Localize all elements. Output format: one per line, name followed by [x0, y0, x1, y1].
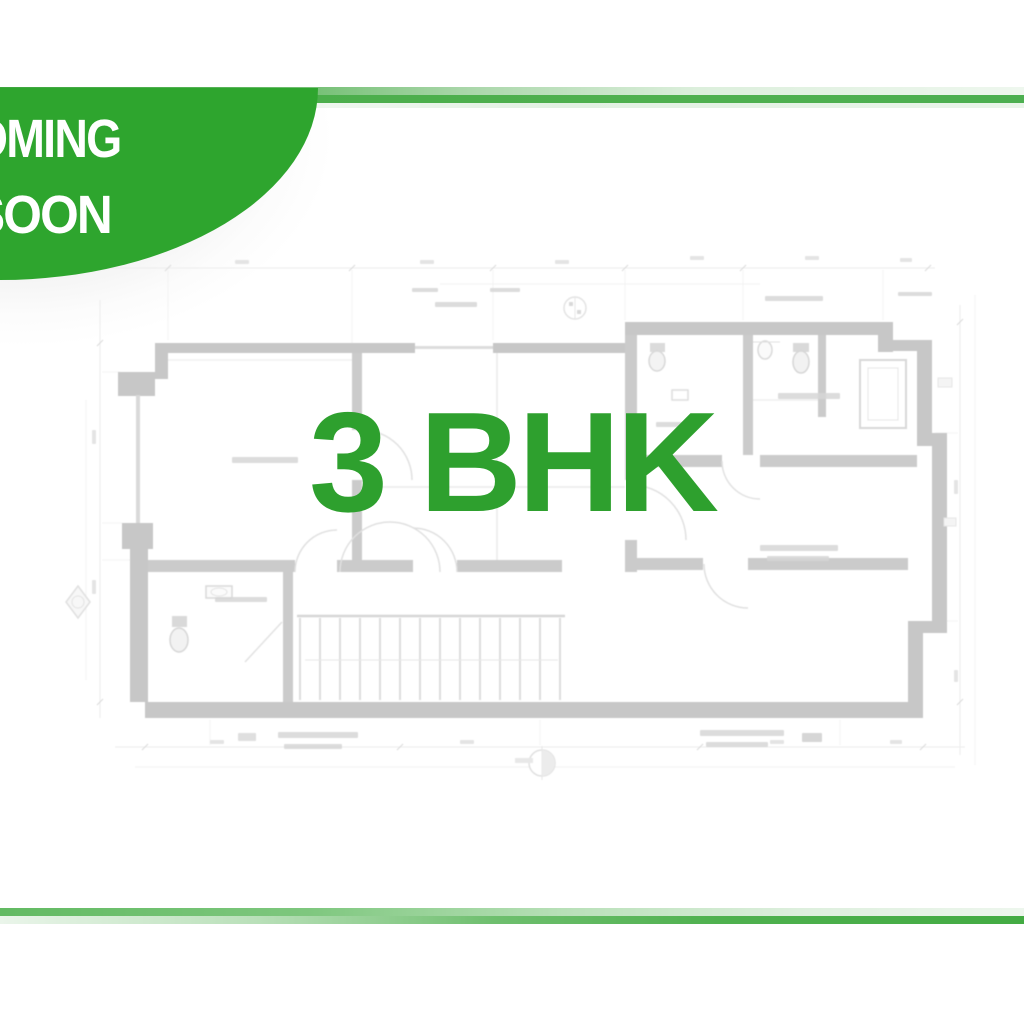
shower-stall — [860, 360, 906, 428]
door-leaf — [245, 622, 282, 662]
bhk-headline: 3 BHK — [309, 392, 715, 534]
badge-text-soon: SOON — [0, 188, 111, 242]
window-left — [136, 395, 140, 523]
badge-text-coming: COMING — [0, 112, 121, 166]
toilet-bowl — [649, 351, 665, 371]
section-marker-icon — [515, 746, 555, 780]
property-promo-image: COMING SOON — [0, 0, 1024, 1024]
toilet-tank — [172, 616, 187, 627]
staircase — [297, 616, 565, 700]
sink — [758, 341, 772, 359]
toilet-bowl — [793, 351, 809, 373]
door-tag-icon — [564, 297, 586, 319]
bottom-bar-solid-row — [0, 916, 1024, 924]
toilet-bowl — [170, 628, 188, 652]
bottom-accent-bar — [0, 908, 1024, 925]
window-top — [415, 346, 493, 349]
